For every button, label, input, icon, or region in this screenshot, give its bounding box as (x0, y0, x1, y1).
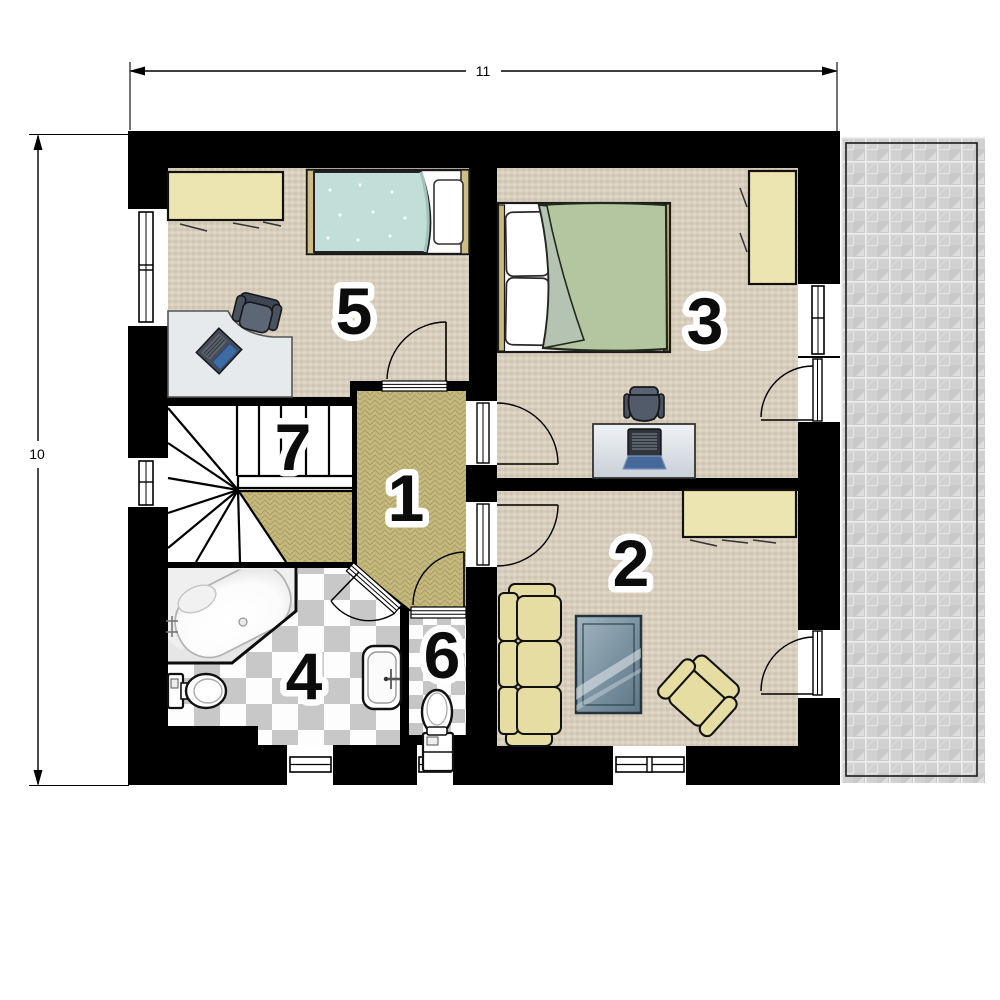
svg-text:2: 2 (613, 526, 650, 600)
svg-text:1: 1 (388, 461, 425, 535)
svg-text:3: 3 (687, 284, 724, 358)
svg-text:5: 5 (336, 274, 373, 348)
svg-text:4: 4 (286, 639, 323, 713)
svg-text:7: 7 (275, 410, 312, 484)
svg-text:6: 6 (424, 618, 461, 692)
svg-text:11: 11 (476, 63, 491, 79)
svg-text:10: 10 (29, 446, 45, 462)
